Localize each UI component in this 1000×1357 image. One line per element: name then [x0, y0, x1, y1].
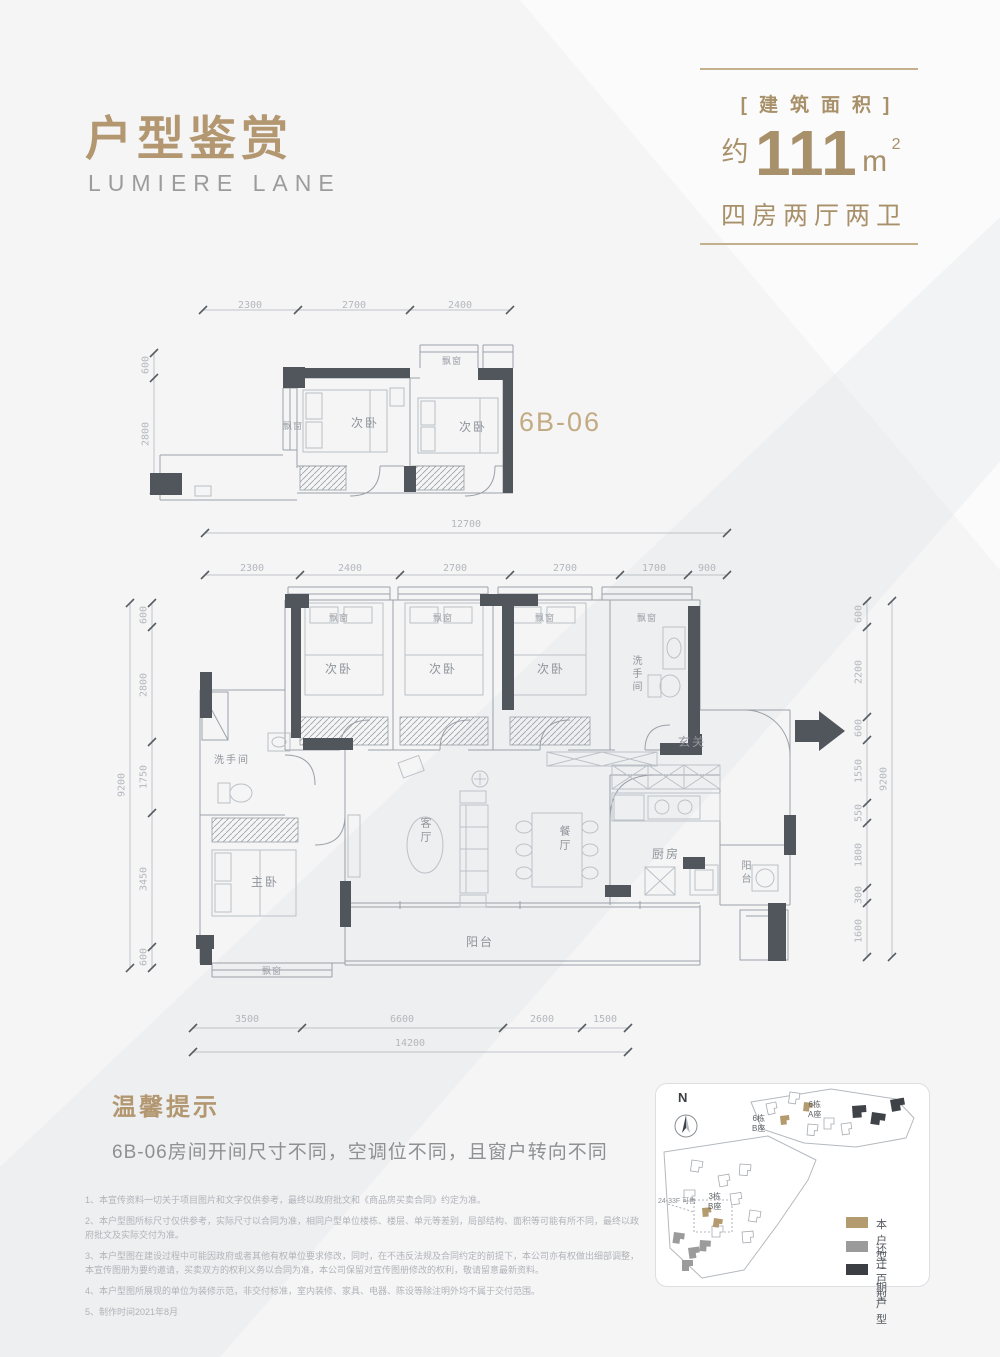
dim-total-left: 9200	[117, 773, 128, 797]
dim-label: 600	[139, 606, 150, 624]
dim-label: 600	[854, 719, 865, 737]
area-value: 111	[755, 117, 858, 189]
bedroom-label: 次卧	[429, 660, 457, 677]
building-label-line: 3栋	[708, 1192, 721, 1202]
area-value-line: 约 111 m 2	[700, 116, 922, 190]
dim-label: 2800	[141, 422, 152, 446]
dim-label: 600	[854, 605, 865, 623]
bedroom-label: 次卧	[537, 660, 565, 677]
dim-label: 600	[141, 356, 152, 374]
building-label-3b: 3栋 B座	[708, 1192, 721, 1211]
footnote: 3、本户型图在建设过程中可能因政府或者其他有权单位要求修改，同时，在不违反法规及…	[85, 1250, 643, 1278]
dim-label: 2600	[530, 1014, 554, 1025]
building-label-6b: 6栋 B座	[752, 1114, 765, 1133]
bay-window-label: 飘窗	[329, 611, 349, 624]
tips-heading: 温馨提示	[112, 1087, 220, 1122]
dim-label: 2400	[448, 300, 472, 311]
dim-label: 2700	[553, 563, 577, 574]
area-box-top-rule	[700, 68, 918, 70]
floor-plan-main: 12700 2300 2400 2700 2700 1700 900 600 2…	[100, 515, 920, 1070]
dining-room-label: 餐厅	[556, 825, 572, 853]
dim-label: 2400	[338, 563, 362, 574]
building-label-6a: 6栋 A座	[808, 1100, 821, 1119]
page-subtitle: LUMIERE LANE	[88, 170, 341, 197]
footnotes: 1、本宣传资料一切关于项目图片和文字仅供参考，最终以政府批文和《商品房买卖合同》…	[85, 1194, 643, 1327]
bay-window-label: 飘窗	[283, 419, 303, 432]
north-label: N	[678, 1090, 687, 1105]
page-title: 户型鉴赏	[85, 100, 293, 169]
dim-label: 3500	[235, 1014, 259, 1025]
legend-swatch-phase2	[846, 1264, 868, 1275]
balcony-label: 阳台	[466, 933, 494, 950]
dim-label: 1600	[854, 919, 865, 943]
bay-window-label: 飘窗	[262, 964, 282, 977]
dim-label: 600	[139, 948, 150, 966]
dim-label: 900	[698, 563, 716, 574]
dim-label: 2800	[139, 673, 150, 697]
bay-window-label: 飘窗	[442, 354, 462, 367]
building-label-line: 6栋	[752, 1114, 765, 1124]
dim-label: 550	[854, 804, 865, 822]
dim-label: 1500	[593, 1014, 617, 1025]
dim-label: 2300	[238, 300, 262, 311]
floor-plan-small-svg	[140, 288, 560, 523]
area-box-bottom-rule	[700, 243, 918, 245]
area-approx: 约	[722, 137, 751, 167]
dim-label: 1800	[854, 843, 865, 867]
dim-label: 2300	[240, 563, 264, 574]
area-unit: m	[862, 145, 887, 178]
bathroom-label: 洗手间	[214, 751, 250, 766]
area-bracket-label: [建筑面积]	[704, 90, 926, 117]
bedroom-label: 次卧	[325, 660, 353, 677]
floor-plan-main-svg	[100, 515, 920, 1070]
saleable-note: 24-33F 可售	[658, 1196, 696, 1206]
service-balcony-label: 阳台	[737, 860, 752, 886]
dim-label: 2700	[443, 563, 467, 574]
dim-total-right: 9200	[879, 767, 890, 791]
dim-label: 1550	[854, 759, 865, 783]
footnote: 5、制作时间2021年8月	[85, 1306, 643, 1320]
bay-window-label: 飘窗	[433, 611, 453, 624]
dim-label: 6600	[390, 1014, 414, 1025]
master-bedroom-label: 主卧	[251, 873, 279, 890]
building-label-line: B座	[708, 1202, 721, 1212]
legend-label: 二期户型	[876, 1263, 888, 1327]
kitchen-label: 厨房	[652, 845, 680, 862]
site-map-svg	[656, 1084, 929, 1286]
bedroom-label: 次卧	[459, 418, 487, 435]
building-label-line: B座	[752, 1124, 765, 1134]
bathroom-label: 洗手间	[628, 655, 643, 694]
legend-swatch-this-unit	[846, 1217, 868, 1228]
unit-layout-text: 四房两厅两卫	[700, 196, 922, 232]
dim-total-top: 12700	[451, 519, 481, 530]
bedroom-label: 次卧	[351, 414, 379, 431]
footnote: 2、本户型图所标尺寸仅供参考，实际尺寸以合同为准，相同户型单位楼栋、楼层、单元等…	[85, 1215, 643, 1243]
bay-window-label: 飘窗	[535, 611, 555, 624]
living-room-label: 客厅	[417, 817, 433, 845]
area-unit-sup: 2	[892, 136, 901, 153]
footnote: 1、本宣传资料一切关于项目图片和文字仅供参考，最终以政府批文和《商品房买卖合同》…	[85, 1194, 643, 1208]
dim-total-bottom: 14200	[395, 1038, 425, 1049]
dim-label: 1750	[139, 765, 150, 789]
building-label-line: 6栋	[808, 1100, 821, 1110]
dim-label: 300	[854, 886, 865, 904]
dim-label: 1700	[642, 563, 666, 574]
bay-window-label: 飘窗	[637, 611, 657, 624]
floor-plan-small: 2300 2700 2400 600 2800 飘窗 飘窗 次卧 次卧	[140, 288, 560, 523]
legend-swatch-resettlement	[846, 1241, 868, 1252]
footnote: 4、本户型图所展现的单位为装修示范，非交付标准，室内装修、家具、电器、陈设等除注…	[85, 1285, 643, 1299]
entry-label: 玄关	[678, 733, 706, 750]
dim-label: 2700	[342, 300, 366, 311]
site-map-panel: N 6栋 B座 6栋 A座 3栋 B座 24-33F 可售 本户型 还迁户型 二…	[655, 1083, 930, 1287]
tips-body: 6B-06房间开间尺寸不同，空调位不同，且窗户转向不同	[112, 1137, 608, 1164]
dim-label: 3450	[139, 867, 150, 891]
building-label-line: A座	[808, 1110, 821, 1120]
dim-label: 2200	[854, 660, 865, 684]
